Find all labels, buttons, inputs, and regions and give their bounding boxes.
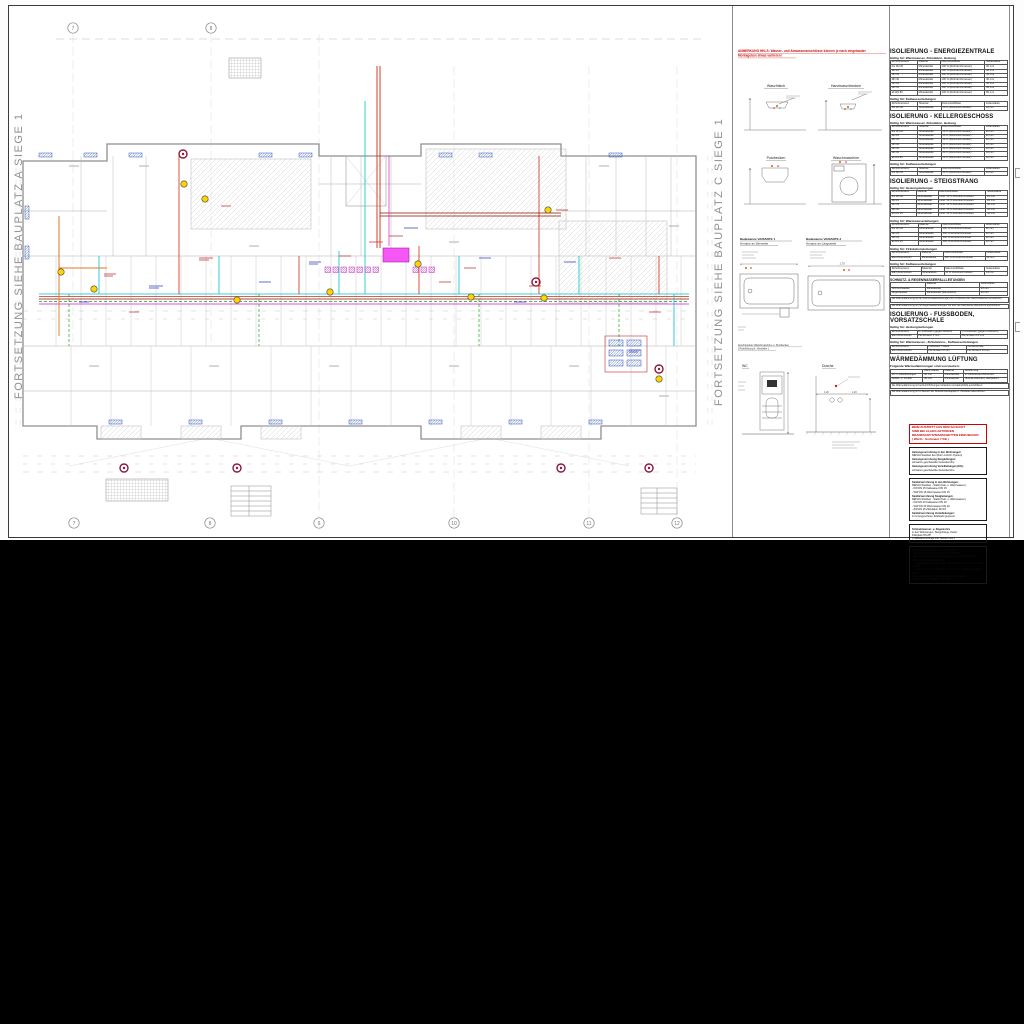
screenshot-root: { "edges": { "left_text": "FORTSETZUNG S… bbox=[0, 0, 1024, 1024]
fixture-label-handwaschbecken: Handwaschbecken bbox=[831, 84, 861, 88]
table-note: Die Wärmedämmung ist bei Durchführungen … bbox=[890, 383, 1009, 389]
axis-bubble-bottom-6: 12 bbox=[674, 521, 680, 527]
table-note: Die Wärmedämmung ist bei Schmutzwasserle… bbox=[890, 297, 1009, 303]
section-subtitle: Gültig für: Kaltwasserleitungen bbox=[890, 97, 1009, 101]
bath-variant1-title: Badewanne VARIANTE 1 bbox=[740, 237, 775, 241]
bath-variant1-subtitle: Armatur an Stirnseite bbox=[740, 242, 769, 246]
shower-label: Dusche bbox=[822, 364, 834, 368]
axis-bubble-bottom-1: 7 bbox=[73, 521, 76, 527]
note-box-dimensionierung: - Wohnungsableitungen: generell DN 50- W… bbox=[909, 546, 987, 584]
table-fussboden-sanitaer: RohrdimensionFußboden / WandVorsatzschal… bbox=[890, 345, 1009, 355]
table-keller-kalt: RohrdimensionMaterialDämmstoffdickeIsoli… bbox=[890, 167, 1009, 177]
fixture-details-panel: ANMERKUNG HKLS: Wasser- und Abwasseransc… bbox=[736, 46, 889, 538]
fixture-label-putzbecken: Putzbecken bbox=[767, 156, 786, 160]
drawing-sheet-page: FORTSETZUNG SIEHE BAUPLATZ A SIEGE 1 FOR… bbox=[0, 0, 1024, 540]
shower-dim-right: 1,20 bbox=[852, 391, 857, 394]
section-subtitle: Gültig für: Kaltwasserleitungen bbox=[890, 162, 1009, 166]
axis-bubble-top-1: 7 bbox=[72, 26, 75, 32]
divider-plan-details bbox=[732, 6, 733, 537]
section-title-steigstrang: ISOLIERUNG - STEIGSTRANG bbox=[890, 179, 1009, 185]
fixture-label-waschtisch: Waschtisch bbox=[767, 84, 785, 88]
section-title-energiezentrale: ISOLIERUNG - ENERGIEZENTRALE bbox=[890, 49, 1009, 55]
note-box-abwasserrohre: Schmutzwasser- u. Regenrohrein den Wohnu… bbox=[909, 524, 987, 543]
axis-bubble-bottom-3: 9 bbox=[318, 521, 321, 527]
hkls-remark-line1: ANMERKUNG HKLS: Wasser- und Abwasseransc… bbox=[738, 49, 867, 53]
section-title-kellergeschoss: ISOLIERUNG - KELLERGESCHOSS bbox=[890, 114, 1009, 120]
axis-bubble-top-2: 8 bbox=[210, 26, 213, 32]
table-steig-warmwasser: RohrdimensionMaterialDämmstoffdickeIsoli… bbox=[890, 223, 1009, 246]
table-steig-zirkulation: RohrdimensionMaterialDämmstoffdickeIsoli… bbox=[890, 251, 1009, 261]
table-note: Die Wärmedämmung ist bei Regenwasserleit… bbox=[890, 304, 1009, 310]
insulation-tables-panel: ISOLIERUNG - ENERGIEZENTRALE Gültig für:… bbox=[890, 46, 1009, 584]
section-subtitle: Gültig für: Kaltwasserleitungen bbox=[890, 262, 1009, 266]
section-subtitle: Folgende Wärmedämmungen sind vorzusehen: bbox=[890, 364, 1009, 368]
hkls-remark-line2: Montagebox etwas variieren! bbox=[738, 54, 782, 58]
axis-bubble-bottom-2: 8 bbox=[209, 521, 212, 527]
table-steig-kaltwasser: RohrdimensionMaterialDämmstoffdickeIsoli… bbox=[890, 266, 1009, 276]
connection-box-caption1: Anschlussbox Waschmaschine u. Putzbecken bbox=[738, 344, 790, 347]
connection-box-caption2: ( Rohrführung lt. Hersteller ) bbox=[738, 348, 769, 351]
axis-bubble-bottom-5: 11 bbox=[586, 521, 591, 527]
section-subtitle: Gültig für: Heizungsleitungen bbox=[890, 325, 1009, 329]
axis-bubble-bottom-4: 10 bbox=[451, 521, 457, 527]
table-energiezentrale-kalt: RohrdimensionMaterialDämmstoffdickeIsoli… bbox=[890, 101, 1009, 111]
wc-label: WC bbox=[742, 364, 748, 368]
table-note: Die Wärmedämmung ist im Bereich der Bran… bbox=[890, 390, 1009, 396]
floor-plan-drawing: 7 8 7 8 9 10 11 12 bbox=[9, 6, 732, 538]
note-box-heizungsverrohrung: Heizungsverrohrung in den Wohnungen:REHA… bbox=[909, 447, 987, 474]
section-subtitle: Gültig für: Warmwasserleitungen bbox=[890, 219, 1009, 223]
fold-mark bbox=[1015, 168, 1020, 178]
section-subtitle: Gültig für: Warmwasser-, Zirkulations-, … bbox=[890, 340, 1009, 344]
shower-dim-left: 1,20 bbox=[824, 391, 829, 394]
plan-sheet: FORTSETZUNG SIEHE BAUPLATZ A SIEGE 1 FOR… bbox=[8, 5, 1014, 538]
section-title-fussboden: ISOLIERUNG - FUSSBODEN, VORSATZSCHALE bbox=[890, 312, 1009, 324]
divider-tables-margin bbox=[1009, 6, 1010, 537]
bath-length-dim: 1,70 bbox=[839, 262, 845, 266]
bath-variant2-subtitle: Armatur an Längsseite bbox=[806, 242, 837, 246]
table-fussboden-heizung: Rohrdimensionim Fußboden (gegen beheizt)… bbox=[890, 330, 1009, 340]
table-energiezentrale-warm: RohrdimensionMaterialDämmstoffdickeIsoli… bbox=[890, 60, 1009, 96]
bath-variant2-title: Badewanne VARIANTE 2 bbox=[806, 237, 841, 241]
table-lueftung: DämmstärkeMaterialAusführungZu- u. Abluf… bbox=[890, 369, 1009, 383]
section-title-lueftung: WÄRMEDÄMMUNG LÜFTUNG bbox=[890, 357, 1009, 363]
table-keller-warm: RohrdimensionMaterialDämmstoffdickeIsoli… bbox=[890, 125, 1009, 161]
fold-mark bbox=[1015, 322, 1020, 332]
table-fallleitungen: MaterialIsolierstärkeSchmutzwasserMinera… bbox=[890, 282, 1009, 296]
fire-protection-warning: BEIM AUSTRITT AUS DEM SCHACHTSIND BEI AL… bbox=[909, 424, 987, 445]
fixture-label-waschmaschine: Waschmaschine bbox=[833, 156, 859, 160]
table-steig-heizung: RohrdimensionMaterialDämmstoffdickeIsoli… bbox=[890, 190, 1009, 217]
note-box-sanitaerverrohrung: Sanitärverrohrung in den Wohnungen:REHAU… bbox=[909, 478, 987, 522]
